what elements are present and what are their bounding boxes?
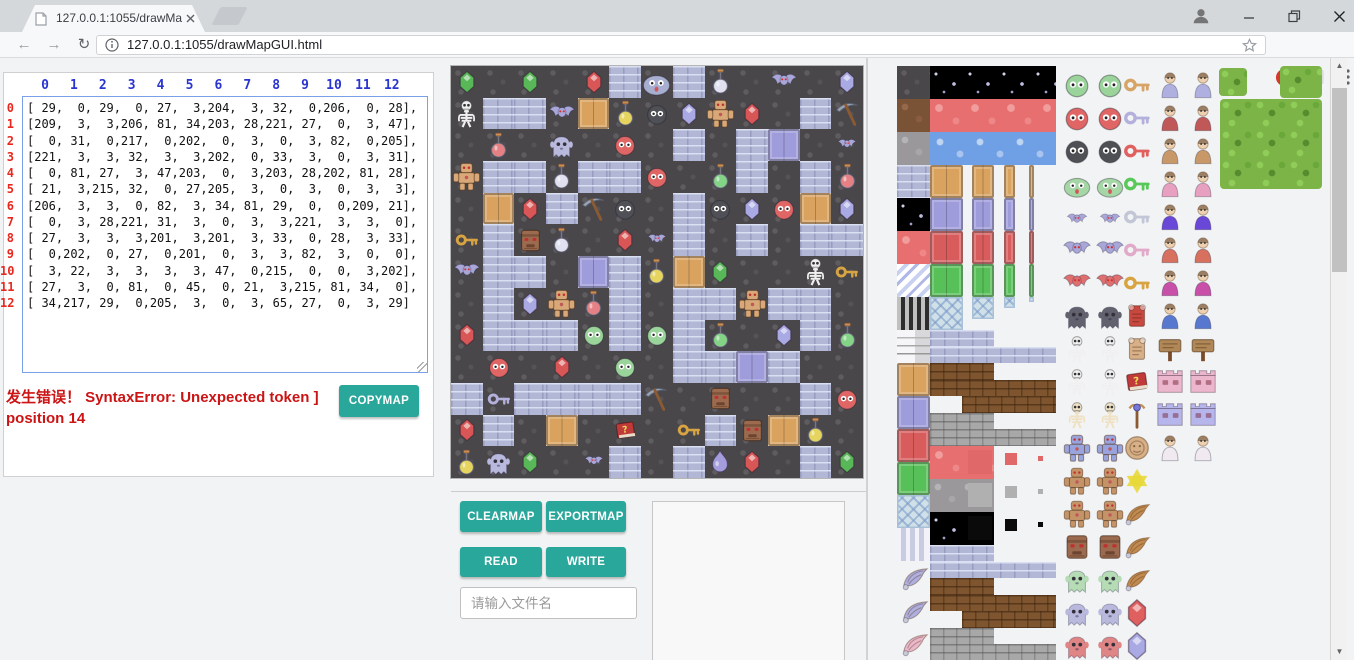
map-tile[interactable] bbox=[800, 66, 832, 98]
map-tile[interactable] bbox=[768, 193, 800, 225]
tileset-tile[interactable] bbox=[972, 264, 994, 297]
map-tile[interactable] bbox=[546, 320, 578, 352]
map-tile[interactable] bbox=[800, 446, 832, 478]
tileset-sprite[interactable] bbox=[1120, 134, 1153, 167]
map-tile[interactable] bbox=[736, 288, 768, 320]
tileset-tile[interactable] bbox=[1005, 453, 1017, 465]
map-tile[interactable] bbox=[673, 224, 705, 256]
map-tile[interactable] bbox=[705, 415, 737, 447]
map-tile[interactable] bbox=[641, 193, 673, 225]
tab-close-icon[interactable] bbox=[185, 13, 196, 24]
map-tile[interactable] bbox=[673, 288, 705, 320]
map-tile[interactable] bbox=[578, 288, 610, 320]
map-tile[interactable] bbox=[705, 161, 737, 193]
tileset-tile[interactable] bbox=[1029, 198, 1034, 231]
map-tile[interactable] bbox=[641, 288, 673, 320]
map-tile[interactable] bbox=[609, 351, 641, 383]
tileset-sprite[interactable] bbox=[1186, 101, 1219, 134]
map-tile[interactable] bbox=[641, 383, 673, 415]
tileset-tile[interactable] bbox=[897, 297, 930, 330]
map-tile[interactable] bbox=[451, 415, 483, 447]
map-tile[interactable] bbox=[514, 224, 546, 256]
map-tile[interactable] bbox=[578, 446, 610, 478]
map-tile[interactable] bbox=[831, 288, 863, 320]
tileset-sprite[interactable] bbox=[898, 595, 931, 628]
tileset-sprite[interactable] bbox=[1060, 134, 1093, 167]
map-tile[interactable] bbox=[800, 288, 832, 320]
tileset-sprite[interactable] bbox=[1153, 365, 1186, 398]
bookmark-star-icon[interactable] bbox=[1242, 38, 1257, 53]
map-tile[interactable] bbox=[451, 288, 483, 320]
map-tile[interactable] bbox=[451, 193, 483, 225]
map-tile[interactable] bbox=[831, 256, 863, 288]
map-tile[interactable] bbox=[673, 98, 705, 130]
tileset-sprite[interactable] bbox=[1060, 299, 1093, 332]
tileset-tile[interactable] bbox=[930, 562, 1056, 578]
tileset-sprite[interactable] bbox=[1060, 101, 1093, 134]
tileset-sprite[interactable] bbox=[1120, 596, 1153, 629]
tileset-sprite[interactable] bbox=[1120, 332, 1153, 365]
tileset-tile[interactable] bbox=[897, 495, 930, 528]
tileset-tile[interactable] bbox=[1220, 99, 1322, 189]
map-tile[interactable] bbox=[609, 320, 641, 352]
map-tile[interactable] bbox=[800, 415, 832, 447]
tileset-sprite[interactable] bbox=[1060, 629, 1093, 660]
tileset-sprite[interactable] bbox=[1153, 266, 1186, 299]
tileset-tile[interactable] bbox=[897, 132, 930, 165]
tileset-tile[interactable] bbox=[972, 297, 994, 319]
tileset-sprite[interactable] bbox=[1120, 629, 1153, 660]
map-tile[interactable] bbox=[736, 66, 768, 98]
tileset-tile[interactable] bbox=[930, 578, 994, 595]
map-tile[interactable] bbox=[483, 224, 515, 256]
map-tile[interactable] bbox=[641, 224, 673, 256]
map-tile[interactable] bbox=[641, 351, 673, 383]
map-tile[interactable] bbox=[546, 224, 578, 256]
tileset-tile[interactable] bbox=[897, 165, 930, 198]
map-tile[interactable] bbox=[514, 98, 546, 130]
tileset-sprite[interactable] bbox=[1060, 365, 1093, 398]
tileset-tile[interactable] bbox=[930, 595, 1056, 611]
map-tile[interactable] bbox=[451, 98, 483, 130]
map-tile[interactable] bbox=[673, 383, 705, 415]
map-tile[interactable] bbox=[578, 66, 610, 98]
map-tile[interactable] bbox=[609, 415, 641, 447]
map-tile[interactable] bbox=[514, 193, 546, 225]
tileset-tile[interactable] bbox=[930, 628, 994, 644]
tileset-sprite[interactable] bbox=[1060, 233, 1093, 266]
map-tile[interactable] bbox=[483, 98, 515, 130]
write-button[interactable]: WRITE bbox=[546, 547, 626, 577]
map-tile[interactable] bbox=[451, 129, 483, 161]
map-tile[interactable] bbox=[514, 446, 546, 478]
map-tile[interactable] bbox=[483, 383, 515, 415]
map-tile[interactable] bbox=[514, 383, 546, 415]
map-tile[interactable] bbox=[546, 129, 578, 161]
map-tile[interactable] bbox=[673, 129, 705, 161]
tileset-sprite[interactable] bbox=[1120, 233, 1153, 266]
map-tile[interactable] bbox=[768, 66, 800, 98]
map-tile[interactable] bbox=[483, 446, 515, 478]
tileset-tile[interactable] bbox=[972, 165, 994, 198]
map-tile[interactable] bbox=[800, 320, 832, 352]
tileset-tile[interactable] bbox=[897, 66, 930, 99]
tileset-sprite[interactable] bbox=[1186, 365, 1219, 398]
minimize-button[interactable] bbox=[1236, 4, 1262, 28]
map-tile[interactable] bbox=[609, 129, 641, 161]
map-tile[interactable] bbox=[736, 224, 768, 256]
matrix-textarea[interactable] bbox=[22, 96, 428, 373]
map-tile[interactable] bbox=[514, 415, 546, 447]
tileset-sprite[interactable] bbox=[1120, 464, 1153, 497]
tileset-sprite[interactable] bbox=[1153, 167, 1186, 200]
tileset-sprite[interactable] bbox=[1153, 299, 1186, 332]
map-tile[interactable] bbox=[578, 415, 610, 447]
tileset-tile[interactable] bbox=[1029, 264, 1034, 297]
tileset-sprite[interactable] bbox=[1153, 233, 1186, 266]
map-tile[interactable] bbox=[546, 98, 578, 130]
tileset-tile[interactable] bbox=[968, 450, 992, 474]
map-tile[interactable] bbox=[514, 320, 546, 352]
map-tile[interactable] bbox=[768, 288, 800, 320]
tileset-tile[interactable] bbox=[930, 363, 994, 380]
map-tile[interactable] bbox=[451, 320, 483, 352]
tileset-tile[interactable] bbox=[897, 429, 930, 462]
tileset-tile[interactable] bbox=[1038, 522, 1043, 527]
tileset-sprite[interactable] bbox=[1186, 299, 1219, 332]
tileset-sprite[interactable] bbox=[1120, 101, 1153, 134]
map-tile[interactable] bbox=[768, 161, 800, 193]
map-tile[interactable] bbox=[514, 129, 546, 161]
tileset-sprite[interactable] bbox=[1060, 563, 1093, 596]
maximize-button[interactable] bbox=[1281, 4, 1307, 28]
map-tile[interactable] bbox=[736, 383, 768, 415]
map-tile[interactable] bbox=[514, 161, 546, 193]
map-tile[interactable] bbox=[578, 98, 610, 130]
tileset-tile[interactable] bbox=[930, 545, 994, 562]
tileset-tile[interactable] bbox=[1029, 231, 1034, 264]
map-tile[interactable] bbox=[578, 224, 610, 256]
map-tile[interactable] bbox=[705, 288, 737, 320]
tileset-tile[interactable] bbox=[1004, 264, 1015, 297]
map-tile[interactable] bbox=[546, 66, 578, 98]
map-tile[interactable] bbox=[641, 320, 673, 352]
tileset-sprite[interactable] bbox=[1120, 563, 1153, 596]
tileset-tile[interactable] bbox=[930, 330, 994, 347]
tileset-sprite[interactable] bbox=[1120, 167, 1153, 200]
tileset-tile[interactable] bbox=[930, 132, 1056, 165]
tileset-sprite[interactable] bbox=[1120, 365, 1153, 398]
map-tile[interactable] bbox=[673, 161, 705, 193]
map-tile[interactable] bbox=[831, 351, 863, 383]
map-tile[interactable] bbox=[483, 161, 515, 193]
tileset-tile[interactable] bbox=[930, 413, 994, 429]
site-info-icon[interactable] bbox=[105, 38, 119, 52]
tileset-sprite[interactable] bbox=[1060, 332, 1093, 365]
map-tile[interactable] bbox=[578, 161, 610, 193]
map-tile[interactable] bbox=[705, 193, 737, 225]
map-tile[interactable] bbox=[673, 415, 705, 447]
map-tile[interactable] bbox=[546, 446, 578, 478]
tileset-tile[interactable] bbox=[1029, 297, 1034, 302]
map-tile[interactable] bbox=[736, 129, 768, 161]
tileset-sprite[interactable] bbox=[1153, 431, 1186, 464]
map-tile[interactable] bbox=[514, 256, 546, 288]
map-tile[interactable] bbox=[736, 415, 768, 447]
map-tile[interactable] bbox=[641, 415, 673, 447]
map-tile[interactable] bbox=[578, 129, 610, 161]
map-tile[interactable] bbox=[641, 129, 673, 161]
map-tile[interactable] bbox=[736, 256, 768, 288]
map-tile[interactable] bbox=[705, 98, 737, 130]
read-button[interactable]: READ bbox=[460, 547, 542, 577]
map-tile[interactable] bbox=[483, 288, 515, 320]
profile-icon[interactable] bbox=[1188, 4, 1214, 28]
tileset-tile[interactable] bbox=[1219, 68, 1247, 96]
map-tile[interactable] bbox=[578, 193, 610, 225]
map-tile[interactable] bbox=[831, 129, 863, 161]
tileset-sprite[interactable] bbox=[1060, 167, 1093, 200]
tileset-tile[interactable] bbox=[897, 198, 930, 231]
tileset-tile[interactable] bbox=[930, 99, 1056, 132]
tileset-sprite[interactable] bbox=[1186, 167, 1219, 200]
tileset-tile[interactable] bbox=[972, 231, 994, 264]
map-tile[interactable] bbox=[673, 320, 705, 352]
tileset-sprite[interactable] bbox=[1186, 332, 1219, 365]
tileset-tile[interactable] bbox=[930, 347, 1056, 363]
map-tile[interactable] bbox=[800, 161, 832, 193]
tileset-tile[interactable] bbox=[962, 611, 1056, 628]
map-tile[interactable] bbox=[736, 193, 768, 225]
clearmap-button[interactable]: CLEARMAP bbox=[460, 501, 542, 532]
tileset-tile[interactable] bbox=[930, 429, 1056, 446]
tileset-tile[interactable] bbox=[930, 297, 963, 330]
tileset-tile[interactable] bbox=[972, 198, 994, 231]
map-tile[interactable] bbox=[483, 415, 515, 447]
map-tile[interactable] bbox=[546, 351, 578, 383]
tileset-sprite[interactable] bbox=[1060, 464, 1093, 497]
map-tile[interactable] bbox=[736, 351, 768, 383]
copymap-button[interactable]: COPYMAP bbox=[339, 385, 419, 417]
map-tile[interactable] bbox=[800, 193, 832, 225]
tileset-tile[interactable] bbox=[1004, 231, 1015, 264]
tileset-sprite[interactable] bbox=[898, 562, 931, 595]
tileset-tile[interactable] bbox=[897, 363, 930, 396]
map-tile[interactable] bbox=[514, 66, 546, 98]
map-tile[interactable] bbox=[609, 256, 641, 288]
tileset-tile[interactable] bbox=[1038, 456, 1043, 461]
tileset-sprite[interactable] bbox=[1153, 134, 1186, 167]
map-tile[interactable] bbox=[768, 224, 800, 256]
map-tile[interactable] bbox=[483, 66, 515, 98]
map-tile[interactable] bbox=[641, 446, 673, 478]
map-tile[interactable] bbox=[831, 415, 863, 447]
tileset-sprite[interactable] bbox=[1060, 68, 1093, 101]
tileset-tile[interactable] bbox=[930, 231, 963, 264]
map-tile[interactable] bbox=[736, 98, 768, 130]
tileset-sprite[interactable] bbox=[1060, 530, 1093, 563]
map-tile[interactable] bbox=[609, 288, 641, 320]
tileset-sprite[interactable] bbox=[1060, 497, 1093, 530]
map-tile[interactable] bbox=[546, 193, 578, 225]
tileset-tile[interactable] bbox=[1004, 198, 1015, 231]
map-tile[interactable] bbox=[483, 193, 515, 225]
close-button[interactable] bbox=[1326, 4, 1352, 28]
map-tile[interactable] bbox=[609, 224, 641, 256]
map-tile[interactable] bbox=[451, 351, 483, 383]
map-tile[interactable] bbox=[768, 98, 800, 130]
url-bar[interactable]: 127.0.0.1:1055/drawMapGUI.html bbox=[96, 35, 1266, 55]
map-tile[interactable] bbox=[546, 383, 578, 415]
tileset-sprite[interactable] bbox=[1060, 596, 1093, 629]
map-tile[interactable] bbox=[768, 129, 800, 161]
map-tile[interactable] bbox=[673, 193, 705, 225]
map-tile[interactable] bbox=[705, 66, 737, 98]
map-tile[interactable] bbox=[514, 288, 546, 320]
tileset-tile[interactable] bbox=[897, 231, 930, 264]
map-tile[interactable] bbox=[831, 224, 863, 256]
tileset-sprite[interactable] bbox=[898, 628, 931, 660]
tileset-sprite[interactable] bbox=[1186, 431, 1219, 464]
map-tile[interactable] bbox=[451, 66, 483, 98]
map-tile[interactable] bbox=[768, 383, 800, 415]
tileset-sprite[interactable] bbox=[1120, 398, 1153, 431]
map-tile[interactable] bbox=[609, 161, 641, 193]
map-tile[interactable] bbox=[800, 351, 832, 383]
browser-tab[interactable]: 127.0.0.1:1055/drawMa bbox=[22, 5, 205, 32]
tileset-sprite[interactable] bbox=[1153, 398, 1186, 431]
tileset-sprite[interactable] bbox=[1060, 203, 1093, 236]
map-tile[interactable] bbox=[736, 320, 768, 352]
map-tile[interactable] bbox=[451, 161, 483, 193]
tileset-tile[interactable] bbox=[1038, 489, 1043, 494]
map-tile[interactable] bbox=[705, 383, 737, 415]
map-tile[interactable] bbox=[831, 383, 863, 415]
scroll-down-icon[interactable]: ▼ bbox=[1331, 644, 1348, 660]
map-tile[interactable] bbox=[800, 256, 832, 288]
tileset-tile[interactable] bbox=[897, 396, 930, 429]
textarea-resize-handle[interactable] bbox=[417, 362, 427, 372]
tileset-sprite[interactable] bbox=[1153, 332, 1186, 365]
map-tile[interactable] bbox=[483, 129, 515, 161]
tileset-sprite[interactable] bbox=[1186, 68, 1219, 101]
map-tile[interactable] bbox=[609, 98, 641, 130]
map-tile[interactable] bbox=[451, 446, 483, 478]
map-tile[interactable] bbox=[705, 256, 737, 288]
tileset-sprite[interactable] bbox=[1120, 266, 1153, 299]
map-tile[interactable] bbox=[641, 256, 673, 288]
tileset-sprite[interactable] bbox=[1120, 530, 1153, 563]
tileset-sprite[interactable] bbox=[1120, 431, 1153, 464]
tileset-sprite[interactable] bbox=[1120, 200, 1153, 233]
map-tile[interactable] bbox=[483, 320, 515, 352]
filename-input[interactable] bbox=[460, 587, 637, 619]
scroll-up-icon[interactable]: ▲ bbox=[1331, 58, 1348, 74]
tileset-tile[interactable] bbox=[1005, 486, 1017, 498]
tileset-tile[interactable] bbox=[897, 528, 930, 561]
map-tile[interactable] bbox=[768, 351, 800, 383]
map-tile[interactable] bbox=[673, 446, 705, 478]
tileset-tile[interactable] bbox=[930, 198, 963, 231]
map-tile[interactable] bbox=[831, 98, 863, 130]
tileset-tile[interactable] bbox=[968, 483, 992, 507]
map-tile[interactable] bbox=[768, 320, 800, 352]
map-tile[interactable] bbox=[641, 161, 673, 193]
map-canvas[interactable] bbox=[451, 66, 863, 478]
map-tile[interactable] bbox=[451, 383, 483, 415]
tileset-tile[interactable] bbox=[968, 516, 992, 540]
map-tile[interactable] bbox=[705, 351, 737, 383]
map-tile[interactable] bbox=[451, 256, 483, 288]
tileset-sprite[interactable] bbox=[1186, 134, 1219, 167]
tileset-tile[interactable] bbox=[962, 396, 1056, 413]
forward-button[interactable]: → bbox=[42, 34, 66, 56]
map-tile[interactable] bbox=[641, 98, 673, 130]
map-tile[interactable] bbox=[609, 193, 641, 225]
map-tile[interactable] bbox=[705, 320, 737, 352]
exportmap-button[interactable]: EXPORTMAP bbox=[546, 501, 626, 532]
map-tile[interactable] bbox=[705, 446, 737, 478]
tileset-sprite[interactable] bbox=[1153, 101, 1186, 134]
map-tile[interactable] bbox=[768, 415, 800, 447]
map-tile[interactable] bbox=[483, 256, 515, 288]
tileset-tile[interactable] bbox=[930, 264, 963, 297]
scrollbar-thumb[interactable] bbox=[1332, 88, 1347, 272]
map-tile[interactable] bbox=[736, 161, 768, 193]
map-tile[interactable] bbox=[673, 256, 705, 288]
tileset-sprite[interactable] bbox=[1186, 266, 1219, 299]
map-tile[interactable] bbox=[514, 351, 546, 383]
scrollbar-track[interactable]: ▲ ▼ bbox=[1330, 58, 1347, 660]
map-tile[interactable] bbox=[800, 129, 832, 161]
map-tile[interactable] bbox=[705, 129, 737, 161]
tileset-tile[interactable] bbox=[897, 462, 930, 495]
new-tab-button[interactable] bbox=[211, 7, 247, 25]
map-tile[interactable] bbox=[831, 446, 863, 478]
map-tile[interactable] bbox=[831, 193, 863, 225]
tileset-sprite[interactable] bbox=[1060, 398, 1093, 431]
map-tile[interactable] bbox=[768, 256, 800, 288]
map-tile[interactable] bbox=[831, 320, 863, 352]
refresh-button[interactable]: ↻ bbox=[72, 34, 96, 56]
map-tile[interactable] bbox=[483, 351, 515, 383]
tileset-tile[interactable] bbox=[897, 330, 930, 363]
map-tile[interactable] bbox=[736, 446, 768, 478]
tileset-tile[interactable] bbox=[1004, 297, 1015, 308]
map-tile[interactable] bbox=[451, 224, 483, 256]
tileset-sprite[interactable] bbox=[1060, 431, 1093, 464]
map-tile[interactable] bbox=[578, 256, 610, 288]
map-tile[interactable] bbox=[641, 66, 673, 98]
tileset-tile[interactable] bbox=[1280, 66, 1322, 98]
map-tile[interactable] bbox=[705, 224, 737, 256]
map-tile[interactable] bbox=[546, 161, 578, 193]
map-tile[interactable] bbox=[609, 66, 641, 98]
map-tile[interactable] bbox=[800, 98, 832, 130]
tileset-tile[interactable] bbox=[897, 99, 930, 132]
map-tile[interactable] bbox=[768, 446, 800, 478]
tileset-sprite[interactable] bbox=[1120, 497, 1153, 530]
tileset-tile[interactable] bbox=[930, 644, 1056, 660]
tileset-sprite[interactable] bbox=[1120, 68, 1153, 101]
tileset-tile[interactable] bbox=[930, 380, 1056, 396]
map-tile[interactable] bbox=[800, 224, 832, 256]
map-tile[interactable] bbox=[578, 351, 610, 383]
tileset-tile[interactable] bbox=[930, 165, 963, 198]
tileset-sprite[interactable] bbox=[1153, 200, 1186, 233]
map-tile[interactable] bbox=[609, 446, 641, 478]
map-tile[interactable] bbox=[546, 288, 578, 320]
